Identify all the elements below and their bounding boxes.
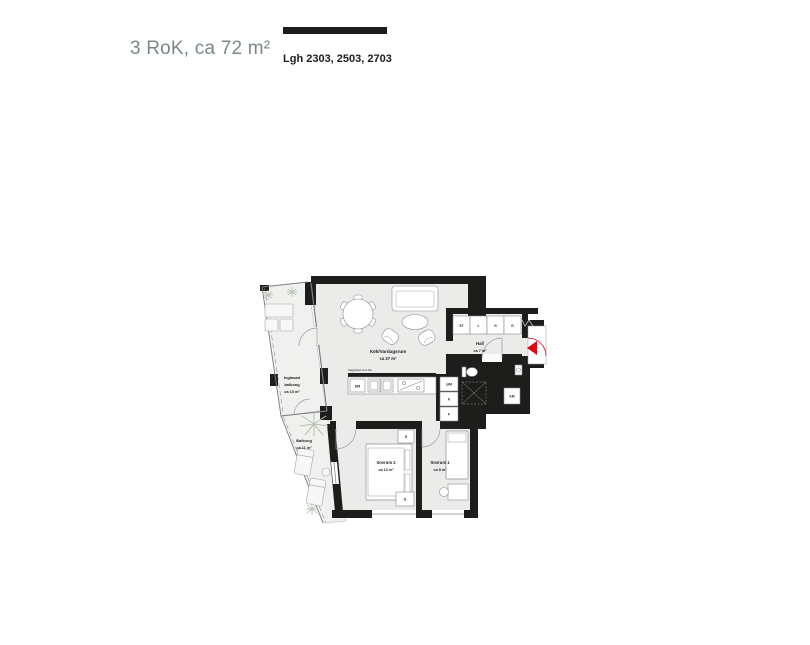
- closet-label-g2: G: [511, 324, 514, 328]
- floorplan-page: 3 RoK, ca 72 m² Lgh 2303, 2503, 2703: [0, 0, 810, 645]
- wall-height-note: Vägghöjd ca 0.9m: [348, 368, 373, 372]
- bedroom1-area: ca 8 m²: [433, 468, 447, 472]
- wall-glazed-right-stub: [305, 282, 316, 305]
- bedroom2-door-gap: [336, 421, 356, 429]
- wall-glazed-left-mid-stub: [270, 374, 278, 386]
- living-area: ca 37 m²: [380, 356, 397, 361]
- wall-bath-enclosure: [454, 354, 530, 414]
- toilet-icon: [462, 367, 478, 377]
- bedroom2-window: [372, 510, 416, 518]
- closet-label-l: L: [477, 324, 479, 328]
- wall-bedroom1-right: [470, 428, 478, 512]
- double-bed: [366, 444, 412, 500]
- washbasin-icon: [515, 365, 522, 375]
- sofa: [392, 286, 438, 311]
- wall-top: [311, 276, 486, 284]
- wall-niche-top-stub: [528, 320, 544, 326]
- single-bed: [446, 431, 468, 479]
- header-divider-bar: [283, 27, 387, 34]
- appliance-label-f: F: [448, 413, 450, 417]
- coffee-table: [402, 315, 428, 330]
- balcony-side-table: [322, 468, 330, 476]
- balcony-area: ca 11 m²: [297, 446, 313, 450]
- appliance-label-um: U/M: [446, 383, 452, 387]
- bedroom1-door-gap: [422, 421, 440, 429]
- hall-opening: [445, 341, 454, 354]
- appliance-column: U/M K F: [440, 377, 458, 421]
- glazed-door-gap: [311, 327, 319, 345]
- desk-chair: [440, 488, 449, 497]
- floorplan-svg: DM Vägghöjd ca 0.9m ST L G G U/M K F: [250, 270, 550, 530]
- dishwasher-label: DM: [355, 385, 360, 389]
- bedroom1-window: [432, 510, 464, 518]
- closet-label-g1: G: [494, 324, 497, 328]
- page-title: 3 RoK, ca 72 m²: [130, 38, 270, 60]
- wall-bedroom2-bedroom1: [416, 428, 422, 512]
- wall-hall-left: [446, 308, 453, 341]
- floorplan-drawing: DM Vägghöjd ca 0.9m ST L G G U/M K F: [250, 270, 550, 530]
- wall-hall-top: [446, 308, 538, 314]
- bedroom2-area: ca 13 m²: [378, 468, 394, 472]
- glazed-balcony-name-2: balkong: [284, 382, 300, 387]
- hall-area: ca 7 m²: [473, 349, 487, 353]
- hall-name: Hall: [476, 341, 484, 346]
- bath-area: ca 4 m²: [492, 375, 505, 379]
- wall-balcony-divider-stub: [320, 406, 332, 420]
- glazed-balcony-name-1: Inglasad: [284, 375, 301, 380]
- entry-door-gap: [522, 338, 528, 356]
- wardrobe-top-label: G: [405, 435, 408, 439]
- bath-name: Bad/Tvätt: [489, 368, 507, 372]
- wardrobe-bottom-label: G: [404, 498, 407, 502]
- washing-machine-label: KM: [510, 395, 515, 399]
- bedroom1-name: Sovrum 1: [430, 460, 450, 465]
- glazed-balcony-area: ca 10 m²: [284, 390, 300, 394]
- stove: [398, 379, 424, 392]
- bedroom2-name: Sovrum 2: [376, 460, 396, 465]
- wall-boundary-mid-stub: [320, 368, 328, 384]
- counter-halfwall: [348, 373, 436, 377]
- bath-door-gap: [482, 354, 502, 362]
- apartment-numbers: Lgh 2303, 2503, 2703: [283, 53, 392, 65]
- living-name: Kök/Vardagsrum: [370, 349, 407, 354]
- hall-closets: ST L G G: [453, 316, 533, 334]
- balcony-name: Balkong: [296, 438, 312, 443]
- wall-hall-bath-connector: [446, 354, 454, 376]
